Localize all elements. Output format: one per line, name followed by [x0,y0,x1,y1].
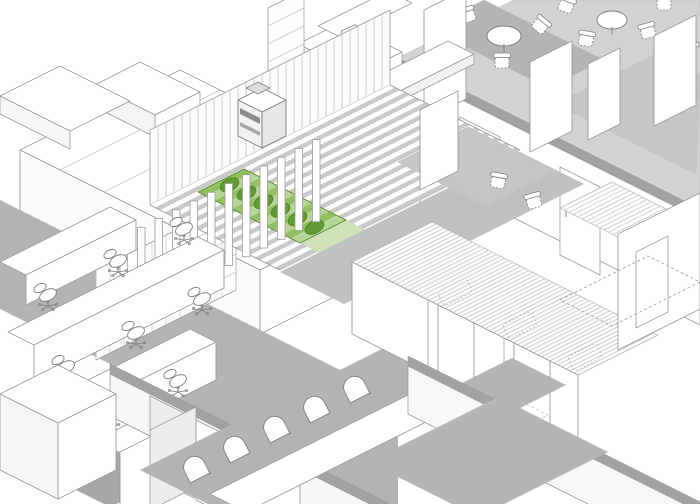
side-chair [494,53,511,68]
fin [313,140,321,222]
fin [260,166,268,248]
chair-back [494,53,511,58]
fin [243,175,251,257]
chair-seat [657,0,671,10]
door-panel [588,48,620,140]
fin [295,149,303,231]
round-table [597,11,627,29]
axonometric-office-drawing: Axonometric line drawing of an office fl… [0,0,700,504]
round-table [487,26,521,46]
side-chair [656,0,673,10]
fin [278,157,286,239]
drawing-canvas: Axonometric line drawing of an office fl… [0,0,700,504]
fin [225,184,233,266]
chair-seat [495,57,509,68]
